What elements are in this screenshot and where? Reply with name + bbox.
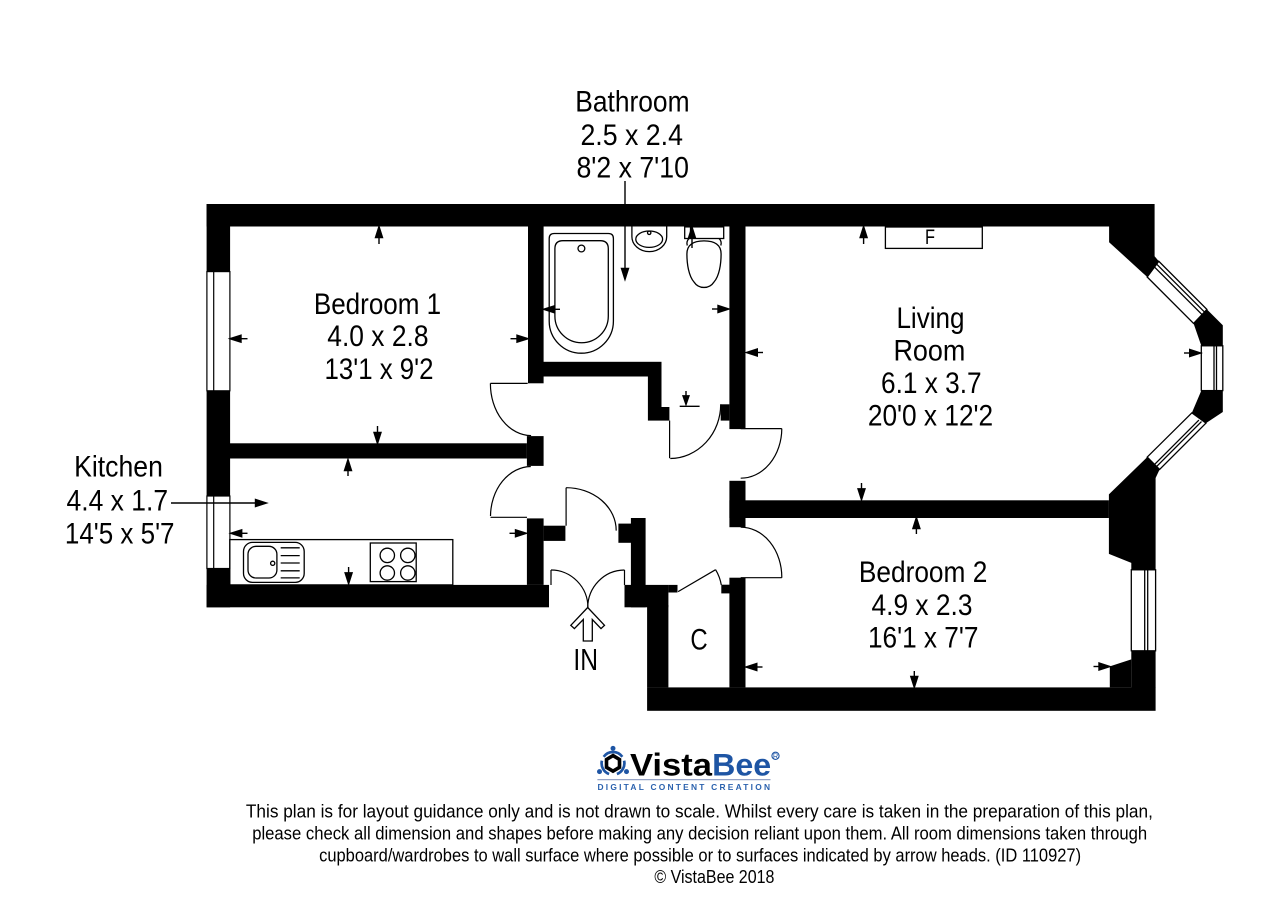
svg-text:F: F <box>925 226 935 249</box>
svg-text:20'0 x 12'2: 20'0 x 12'2 <box>868 399 993 432</box>
svg-text:please check all dimension and: please check all dimension and shapes be… <box>252 824 1147 844</box>
svg-text:8'2 x 7'10: 8'2 x 7'10 <box>576 152 689 185</box>
svg-text:Room: Room <box>893 334 965 367</box>
svg-text:14'5 x 5'7: 14'5 x 5'7 <box>65 518 175 551</box>
svg-text:Bedroom 1: Bedroom 1 <box>314 288 441 321</box>
svg-text:Bathroom: Bathroom <box>575 86 689 119</box>
svg-text:4.4 x 1.7: 4.4 x 1.7 <box>67 485 169 518</box>
svg-text:This plan is for layout guidan: This plan is for layout guidance only an… <box>246 802 1153 822</box>
svg-text:Bedroom 2: Bedroom 2 <box>859 556 987 589</box>
svg-text:R: R <box>773 751 778 760</box>
svg-text:cupboard/wardrobes to wall sur: cupboard/wardrobes to wall surface where… <box>319 846 1081 866</box>
svg-text:IN: IN <box>573 642 598 677</box>
svg-text:4.0 x 2.8: 4.0 x 2.8 <box>327 320 428 353</box>
svg-text:© VistaBee 2018: © VistaBee 2018 <box>654 867 774 887</box>
svg-text:13'1 x 9'2: 13'1 x 9'2 <box>325 353 434 386</box>
svg-text:6.1 x 3.7: 6.1 x 3.7 <box>881 367 982 400</box>
svg-text:C: C <box>690 624 707 657</box>
svg-text:16'1 x 7'7: 16'1 x 7'7 <box>868 621 979 654</box>
svg-text:Living: Living <box>896 302 964 335</box>
svg-text:DIGITAL CONTENT CREATION: DIGITAL CONTENT CREATION <box>598 782 771 792</box>
svg-text:2.5 x 2.4: 2.5 x 2.4 <box>580 119 683 152</box>
svg-text:Vista: Vista <box>630 747 713 783</box>
svg-text:4.9 x 2.3: 4.9 x 2.3 <box>872 589 973 622</box>
svg-text:Bee: Bee <box>712 747 771 783</box>
svg-text:Kitchen: Kitchen <box>74 450 163 483</box>
